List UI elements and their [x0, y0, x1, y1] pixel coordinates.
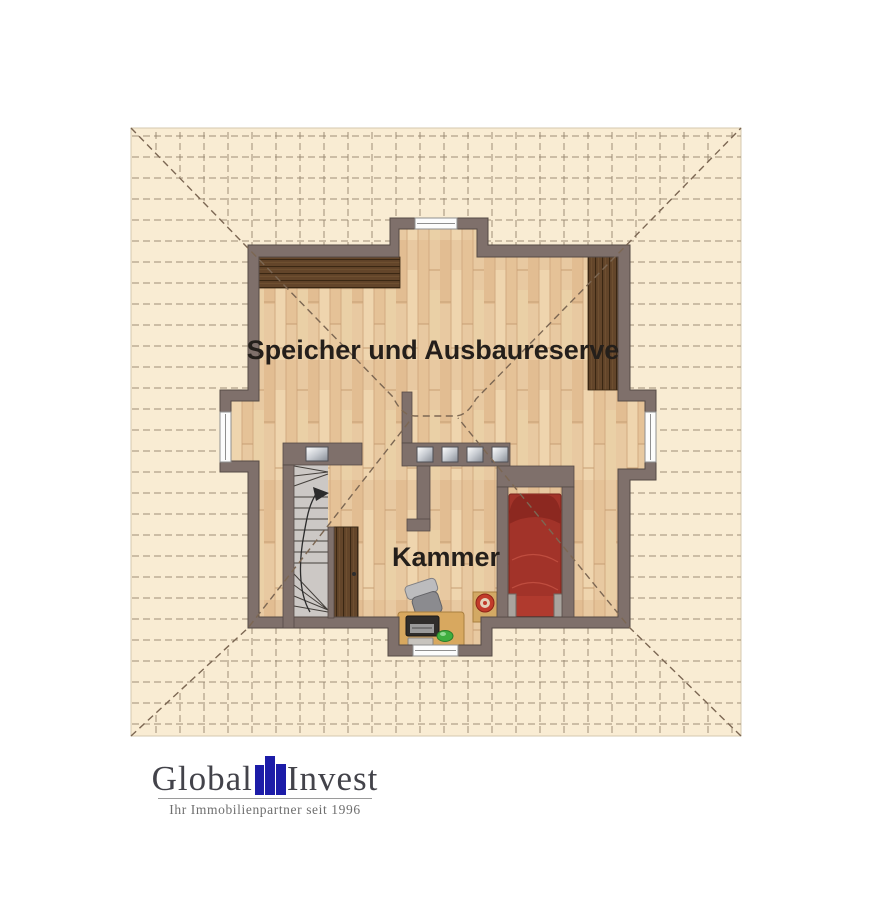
attic-storage-strip-right [588, 257, 618, 390]
floorplan-drawing: Speicher und Ausbaureserve Kammer [0, 0, 885, 910]
staircase [294, 465, 329, 617]
logo-word-global: Global [152, 761, 253, 796]
logo-word-invest: Invest [287, 761, 379, 796]
company-logo: Global Invest Ihr Immobilienpartner seit… [158, 752, 372, 818]
logo-bars-icon [255, 756, 286, 795]
room-label-kammer: Kammer [392, 542, 501, 572]
glass-block-icon [467, 447, 483, 462]
attic-storage-strip-top [259, 257, 400, 288]
door-handle-icon [352, 572, 356, 576]
glass-block-icon [306, 447, 328, 461]
wood-door [334, 527, 358, 618]
room-label-attic: Speicher und Ausbaureserve [247, 335, 620, 365]
glass-block-icon [492, 447, 508, 462]
glass-block-icon [442, 447, 458, 462]
floorplan-page: Speicher und Ausbaureserve Kammer Global… [0, 0, 885, 910]
keyboard-icon [408, 638, 433, 645]
glass-block-icon [417, 447, 433, 462]
mouse-icon [437, 631, 453, 642]
logo-divider [158, 798, 372, 799]
logo-tagline: Ihr Immobilienpartner seit 1996 [158, 802, 372, 818]
